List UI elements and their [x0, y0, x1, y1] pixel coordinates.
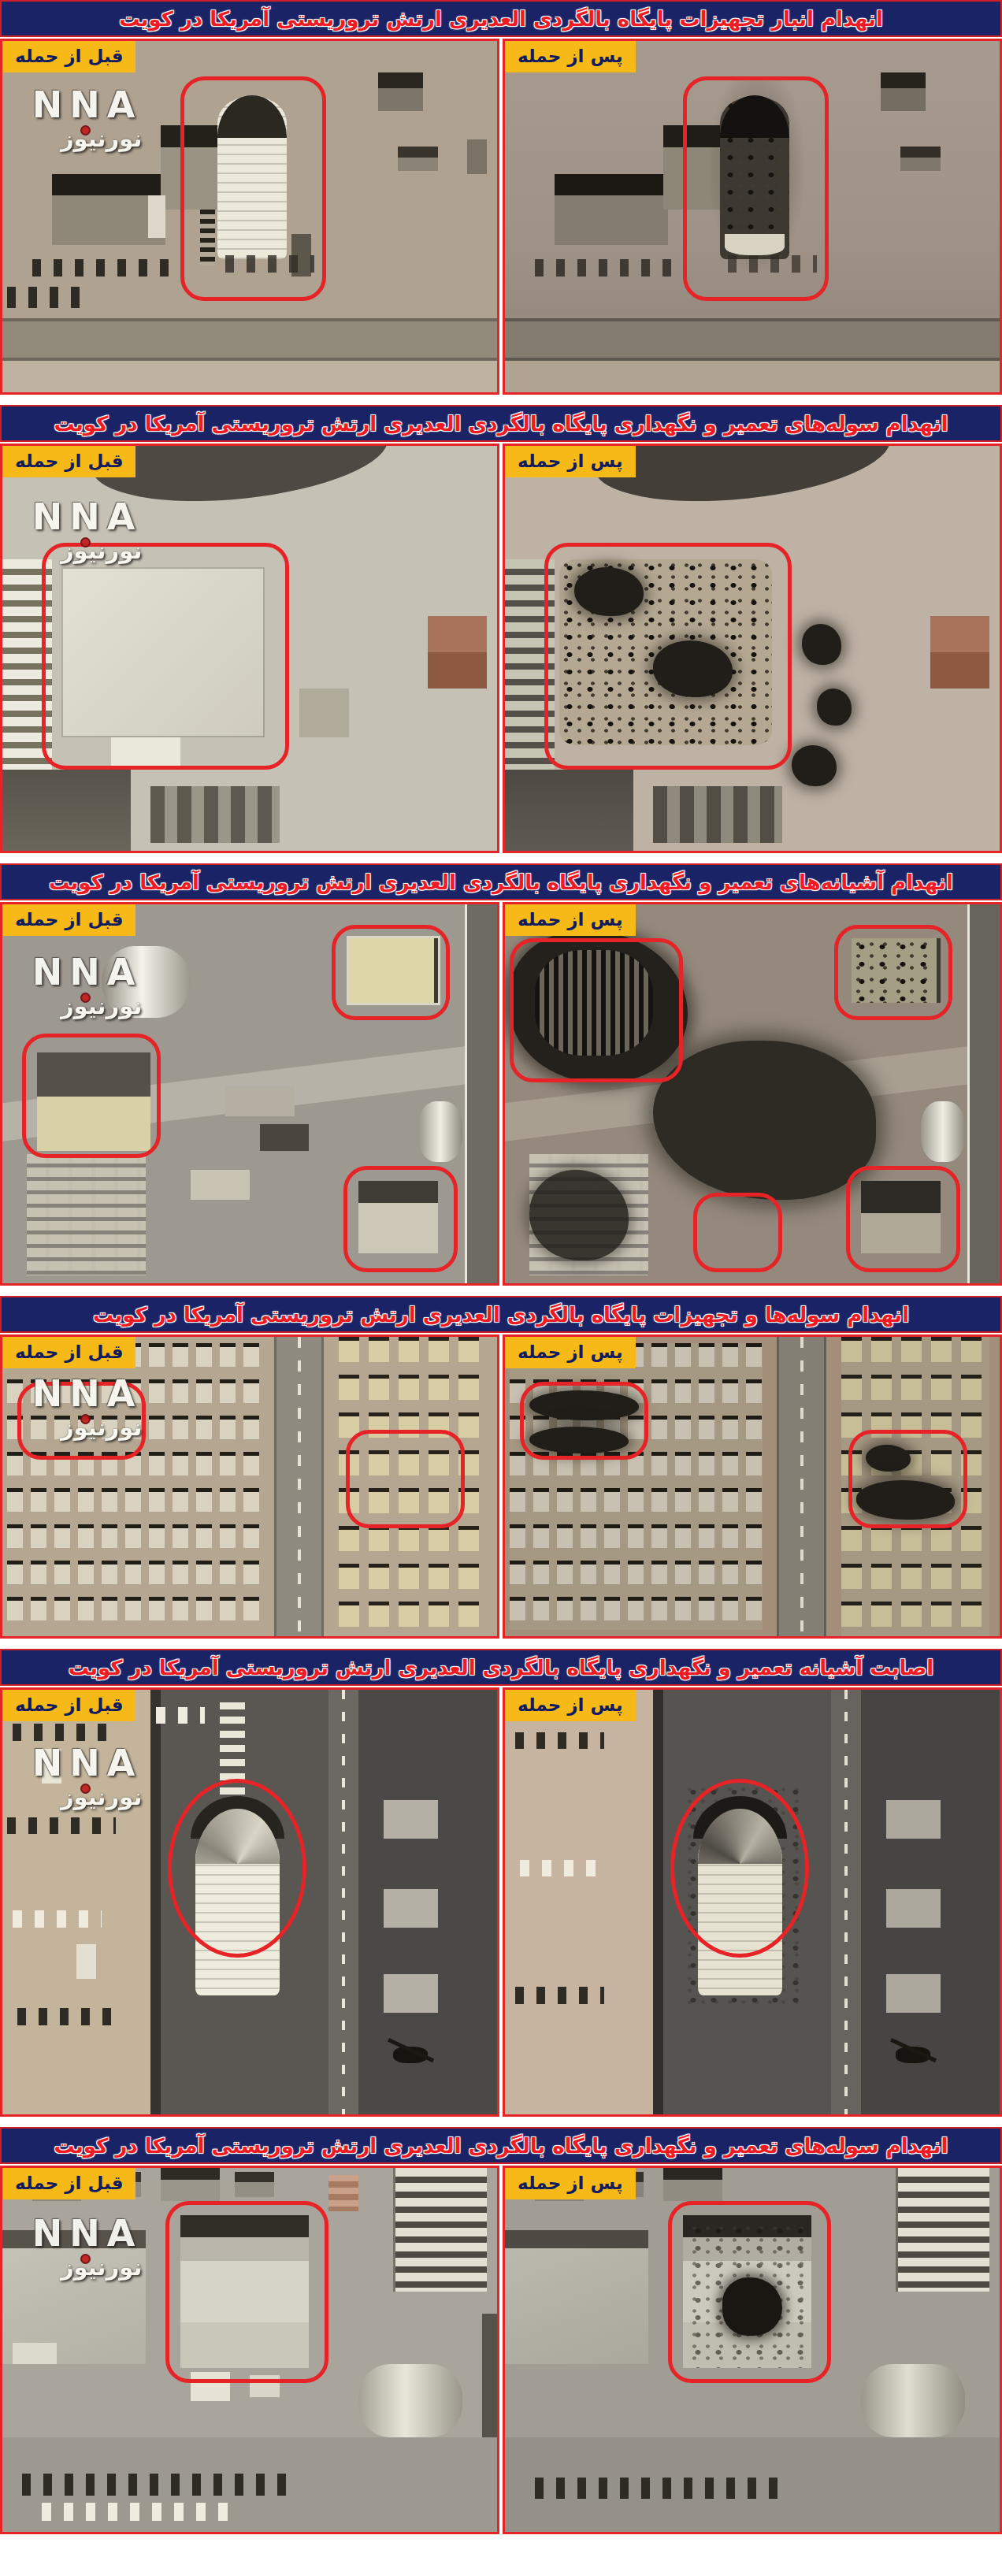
striped-warehouse — [896, 2168, 989, 2292]
watermark-nna-text: NNA — [32, 2215, 143, 2251]
truck — [76, 1944, 96, 1978]
container-row — [653, 786, 781, 843]
helipad — [384, 1889, 438, 1928]
road-lane-line — [844, 1690, 848, 2114]
section-5-header: اصابت آشیانه تعمیر و نگهداری پایگاه بالگ… — [0, 1649, 1002, 1686]
quonset-hut — [921, 1101, 966, 1162]
section-2: انهدام سوله‌های تعمیر و نگهداری پایگاه ب… — [0, 405, 1002, 853]
satellite-image-after: پس از حمله — [503, 1687, 1002, 2117]
watermark-nna-logo: NNA نورنیوز — [32, 1745, 143, 1809]
container-row — [150, 786, 279, 843]
watermark-nna-logo: NNA نورنیوز — [32, 499, 143, 562]
large-building — [505, 2230, 648, 2365]
road — [2, 318, 497, 361]
truck — [148, 195, 165, 238]
burn-mark — [792, 745, 837, 785]
small-building — [161, 2168, 220, 2201]
highlight-box — [343, 1166, 457, 1272]
red-roof-shed — [930, 616, 989, 689]
road-lane-line — [800, 1337, 803, 1636]
striped-warehouse — [393, 2168, 487, 2292]
helipad — [886, 1889, 941, 1928]
after-attack-label: پس از حمله — [505, 1337, 636, 1368]
section-4: انهدام سوله‌ها و تجهیزات پایگاه بالگردی … — [0, 1296, 1002, 1639]
small-building — [881, 72, 926, 111]
vehicle-row — [13, 1910, 102, 1928]
red-roof-shed — [428, 616, 487, 689]
section-3: انهدام آشیانه‌های تعمیر و نگهداری پایگاه… — [0, 863, 1002, 1286]
satellite-image-after: پس از حمله — [503, 39, 1002, 395]
satellite-image-after: پس از حمله — [503, 902, 1002, 1286]
quonset-hut — [418, 1101, 463, 1162]
small-building — [663, 2168, 722, 2201]
before-attack-label: قبل از حمله — [2, 446, 135, 477]
vehicle-row — [156, 1707, 206, 1724]
watermark-noornews-text: نورنیوز — [32, 128, 143, 150]
section-4-header: انهدام سوله‌ها و تجهیزات پایگاه بالگردی … — [0, 1296, 1002, 1333]
small-building — [467, 139, 487, 175]
satellite-image-after: پس از حمله — [503, 444, 1002, 853]
satellite-image-before: قبل از حمله NNA نورنیوز — [0, 1687, 499, 2117]
section-4-title: انهدام سوله‌ها و تجهیزات پایگاه بالگردی … — [93, 1303, 909, 1327]
satellite-image-before: قبل از حمله NNA نورنیوز — [0, 39, 499, 395]
small-building — [225, 1086, 295, 1116]
before-attack-label: قبل از حمله — [2, 1337, 135, 1368]
after-attack-label: پس از حمله — [505, 2168, 636, 2199]
small-building — [378, 72, 423, 111]
watermark-noornews-text: نورنیوز — [32, 2256, 143, 2279]
satellite-image-before: قبل از حمله NNA نورنیوز — [0, 1334, 499, 1639]
section-6: انهدام سوله‌های تعمیر و نگهداری پایگاه ب… — [0, 2127, 1002, 2534]
quonset-hut — [861, 2364, 965, 2437]
highlight-box — [332, 925, 451, 1019]
vehicle-row — [22, 2474, 294, 2496]
highlight-box — [834, 925, 953, 1019]
highlight-box — [520, 1382, 648, 1460]
watermark-nna-logo: NNA نورنیوز — [32, 87, 143, 150]
satellite-image-after: پس از حمله — [503, 2166, 1002, 2534]
small-building — [191, 1170, 250, 1200]
watermark-red-dot — [80, 993, 91, 1003]
road-lane-line — [342, 1690, 345, 2114]
section-1-title: انهدام انبار تجهیزات پایگاه بالگردی العد… — [119, 7, 883, 31]
section-6-header: انهدام سوله‌های تعمیر و نگهداری پایگاه ب… — [0, 2127, 1002, 2164]
helipad — [384, 1800, 438, 1839]
after-attack-label: پس از حمله — [505, 904, 636, 936]
road-vertical — [967, 904, 1000, 1283]
container-stack — [328, 2175, 358, 2211]
vehicle-row — [13, 1724, 112, 1741]
warehouse-building — [555, 174, 668, 244]
watermark-nna-text: NNA — [32, 87, 143, 123]
burn-mark — [817, 689, 852, 725]
section-1: انهدام انبار تجهیزات پایگاه بالگردی العد… — [0, 0, 1002, 395]
highlight-box — [510, 938, 683, 1082]
satellite-image-before: قبل از حمله NNA نورنیوز — [0, 444, 499, 853]
roof-shadow — [505, 2230, 648, 2248]
highlight-box — [848, 1430, 967, 1528]
vehicle-row — [535, 2478, 782, 2500]
small-building — [299, 689, 349, 737]
vehicle-row — [32, 259, 180, 277]
section-2-title: انهدام سوله‌های تعمیر و نگهداری پایگاه ب… — [54, 412, 948, 436]
vehicle-row — [520, 1860, 599, 1877]
highlight-box — [22, 1034, 161, 1159]
section-2-header: انهدام سوله‌های تعمیر و نگهداری پایگاه ب… — [0, 405, 1002, 442]
section-3-title: انهدام آشیانه‌های تعمیر و نگهداری پایگاه… — [49, 870, 953, 894]
section-6-title: انهدام سوله‌های تعمیر و نگهداری پایگاه ب… — [54, 2134, 948, 2158]
highlight-box — [846, 1166, 959, 1272]
watermark-noornews-text: نورنیوز — [32, 540, 143, 562]
highlight-box — [42, 543, 289, 770]
watermark-noornews-text: نورنیوز — [32, 1416, 143, 1439]
quonset-hut — [358, 2364, 462, 2437]
vehicle-row — [42, 2503, 239, 2521]
vehicle-row — [17, 2008, 117, 2025]
highlight-box — [180, 76, 326, 301]
vehicle-row — [535, 259, 683, 277]
satellite-image-after: پس از حمله — [503, 1334, 1002, 1639]
highlight-box — [683, 76, 829, 301]
vehicle-row — [7, 287, 86, 308]
satellite-image-before: قبل از حمله NNA نورنیوز — [0, 2166, 499, 2534]
road-vertical — [465, 904, 497, 1283]
watermark-nna-text: NNA — [32, 1745, 143, 1781]
highlight-box — [346, 1430, 465, 1528]
satellite-image-before: قبل از حمله NNA نورنیوز — [0, 902, 499, 1286]
small-building — [235, 2172, 274, 2197]
tarmac-edge — [150, 1690, 161, 2114]
helipad — [886, 1800, 941, 1839]
large-burn-area — [653, 1041, 876, 1200]
road-lane-line — [298, 1337, 301, 1636]
road-curve — [590, 444, 895, 514]
highlight-circle — [670, 1779, 809, 1957]
watermark-red-dot — [80, 537, 91, 547]
section-1-header: انهدام انبار تجهیزات پایگاه بالگردی العد… — [0, 0, 1002, 37]
section-5-title: اصابت آشیانه تعمیر و نگهداری پایگاه بالگ… — [69, 1656, 934, 1680]
watermark-noornews-text: نورنیوز — [32, 995, 143, 1018]
watermark-nna-text: NNA — [32, 954, 143, 990]
before-attack-label: قبل از حمله — [2, 41, 135, 72]
helipad — [886, 1974, 941, 2013]
before-attack-label: قبل از حمله — [2, 1690, 135, 1721]
watermark-nna-logo: NNA نورنیوز — [32, 1375, 143, 1439]
highlight-box — [165, 2201, 328, 2383]
section-5: اصابت آشیانه تعمیر و نگهداری پایگاه بالگ… — [0, 1649, 1002, 2117]
watermark-nna-logo: NNA نورنیوز — [32, 2215, 143, 2279]
tarmac-edge — [653, 1690, 663, 2114]
ground-strip — [505, 361, 1000, 392]
highlight-circle — [168, 1779, 306, 1957]
section-3-header: انهدام آشیانه‌های تعمیر و نگهداری پایگاه… — [0, 863, 1002, 900]
dark-building — [505, 770, 633, 851]
after-attack-label: پس از حمله — [505, 41, 636, 72]
burn-mark — [802, 624, 841, 664]
vehicle-row — [515, 1732, 604, 1750]
helipad — [384, 1974, 438, 2013]
small-building — [900, 147, 940, 171]
ground-strip — [2, 361, 497, 392]
highlight-box — [668, 2201, 831, 2383]
after-attack-label: پس از حمله — [505, 1690, 636, 1721]
tent-pad-grid — [27, 1154, 146, 1275]
watermark-nna-logo: NNA نورنیوز — [32, 954, 143, 1018]
watermark-nna-text: NNA — [32, 1375, 143, 1412]
vehicle-row — [515, 1987, 604, 2004]
building-annex — [13, 2343, 58, 2365]
before-attack-label: قبل از حمله — [2, 904, 135, 936]
vehicle-row — [7, 1817, 116, 1835]
small-building — [398, 147, 437, 171]
after-attack-label: پس از حمله — [505, 446, 636, 477]
watermark-noornews-text: نورنیوز — [32, 1786, 143, 1809]
highlight-box — [693, 1193, 782, 1272]
watermark-red-dot — [80, 125, 91, 135]
small-building — [260, 1124, 310, 1151]
road — [505, 318, 1000, 361]
watermark-nna-text: NNA — [32, 499, 143, 535]
before-attack-label: قبل از حمله — [2, 2168, 135, 2199]
highlight-box — [544, 543, 792, 770]
dark-building — [2, 770, 131, 851]
